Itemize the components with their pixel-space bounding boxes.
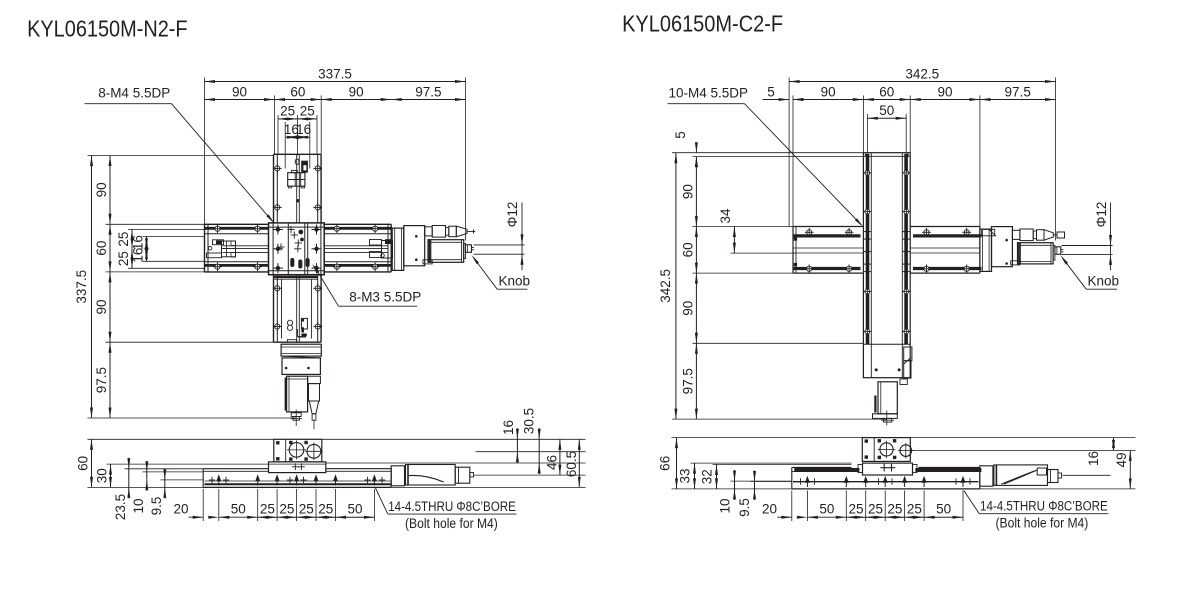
svg-text:Φ12: Φ12: [505, 202, 520, 228]
svg-text:90: 90: [94, 299, 109, 314]
svg-text:25: 25: [280, 104, 295, 119]
svg-text:90: 90: [937, 84, 952, 99]
svg-text:33: 33: [678, 468, 693, 483]
svg-text:14-4.5THRU Φ8C’BORE: 14-4.5THRU Φ8C’BORE: [388, 499, 516, 514]
svg-text:25: 25: [848, 501, 863, 516]
svg-text:8-M3 5.5DP: 8-M3 5.5DP: [349, 290, 421, 305]
svg-text:5: 5: [673, 131, 688, 139]
svg-text:16: 16: [1086, 451, 1101, 466]
svg-text:30.5: 30.5: [522, 408, 537, 434]
svg-text:66: 66: [658, 456, 673, 471]
svg-text:60: 60: [879, 84, 894, 99]
svg-text:50: 50: [231, 501, 246, 516]
svg-text:60: 60: [680, 242, 695, 257]
svg-text:60: 60: [94, 241, 109, 256]
svg-text:50: 50: [347, 501, 362, 516]
svg-text:10: 10: [131, 498, 146, 513]
svg-text:25: 25: [116, 232, 131, 247]
svg-text:KYL06150M-C2-F: KYL06150M-C2-F: [622, 11, 783, 37]
svg-text:8-M4 5.5DP: 8-M4 5.5DP: [98, 86, 170, 101]
svg-text:90: 90: [680, 301, 695, 316]
svg-text:25: 25: [318, 501, 333, 516]
svg-text:9.5: 9.5: [149, 497, 164, 516]
svg-text:20: 20: [173, 501, 188, 516]
svg-text:25: 25: [116, 251, 131, 266]
svg-text:46: 46: [545, 455, 560, 470]
svg-text:25: 25: [907, 501, 922, 516]
svg-text:25: 25: [887, 501, 902, 516]
svg-text:KYL06150M-N2-F: KYL06150M-N2-F: [27, 16, 188, 42]
svg-text:90: 90: [94, 182, 109, 197]
svg-text:10-M4 5.5DP: 10-M4 5.5DP: [669, 86, 749, 101]
svg-text:30: 30: [95, 468, 110, 483]
svg-text:90: 90: [680, 184, 695, 199]
svg-text:90: 90: [821, 84, 836, 99]
svg-text:25: 25: [260, 501, 275, 516]
svg-text:50: 50: [819, 501, 834, 516]
svg-text:23.5: 23.5: [113, 494, 128, 520]
svg-text:342.5: 342.5: [658, 269, 673, 303]
svg-text:60.5: 60.5: [564, 451, 579, 477]
svg-text:Knob: Knob: [1088, 274, 1120, 289]
svg-text:60: 60: [290, 84, 305, 99]
svg-text:34: 34: [718, 208, 733, 224]
svg-text:32: 32: [700, 469, 715, 484]
svg-text:97.5: 97.5: [1005, 84, 1031, 99]
svg-text:25: 25: [868, 501, 883, 516]
svg-text:25: 25: [299, 501, 314, 516]
svg-text:16: 16: [131, 248, 146, 263]
svg-text:50: 50: [879, 103, 894, 118]
svg-text:97.5: 97.5: [94, 367, 109, 393]
svg-text:20: 20: [762, 501, 777, 516]
svg-text:(Bolt hole for M4): (Bolt hole for M4): [405, 516, 498, 531]
svg-text:14-4.5THRU Φ8C’BORE: 14-4.5THRU Φ8C’BORE: [980, 499, 1108, 514]
svg-text:25: 25: [300, 104, 315, 119]
svg-text:Knob: Knob: [499, 274, 531, 289]
svg-text:337.5: 337.5: [318, 66, 352, 81]
svg-text:49: 49: [1114, 452, 1129, 467]
svg-text:16: 16: [296, 122, 311, 137]
svg-text:(Bolt hole for M4): (Bolt hole for M4): [996, 516, 1089, 531]
svg-text:60: 60: [76, 456, 91, 471]
svg-text:50: 50: [936, 501, 951, 516]
svg-text:9.5: 9.5: [737, 498, 752, 517]
svg-text:25: 25: [279, 501, 294, 516]
svg-text:342.5: 342.5: [905, 66, 939, 81]
svg-text:337.5: 337.5: [74, 270, 89, 304]
svg-text:16: 16: [501, 420, 516, 435]
svg-text:90: 90: [349, 84, 364, 99]
svg-text:Φ12: Φ12: [1094, 202, 1109, 228]
svg-text:97.5: 97.5: [415, 84, 441, 99]
svg-text:5: 5: [767, 84, 775, 99]
svg-text:97.5: 97.5: [680, 368, 695, 394]
svg-text:10: 10: [718, 498, 733, 513]
svg-text:90: 90: [232, 84, 247, 99]
